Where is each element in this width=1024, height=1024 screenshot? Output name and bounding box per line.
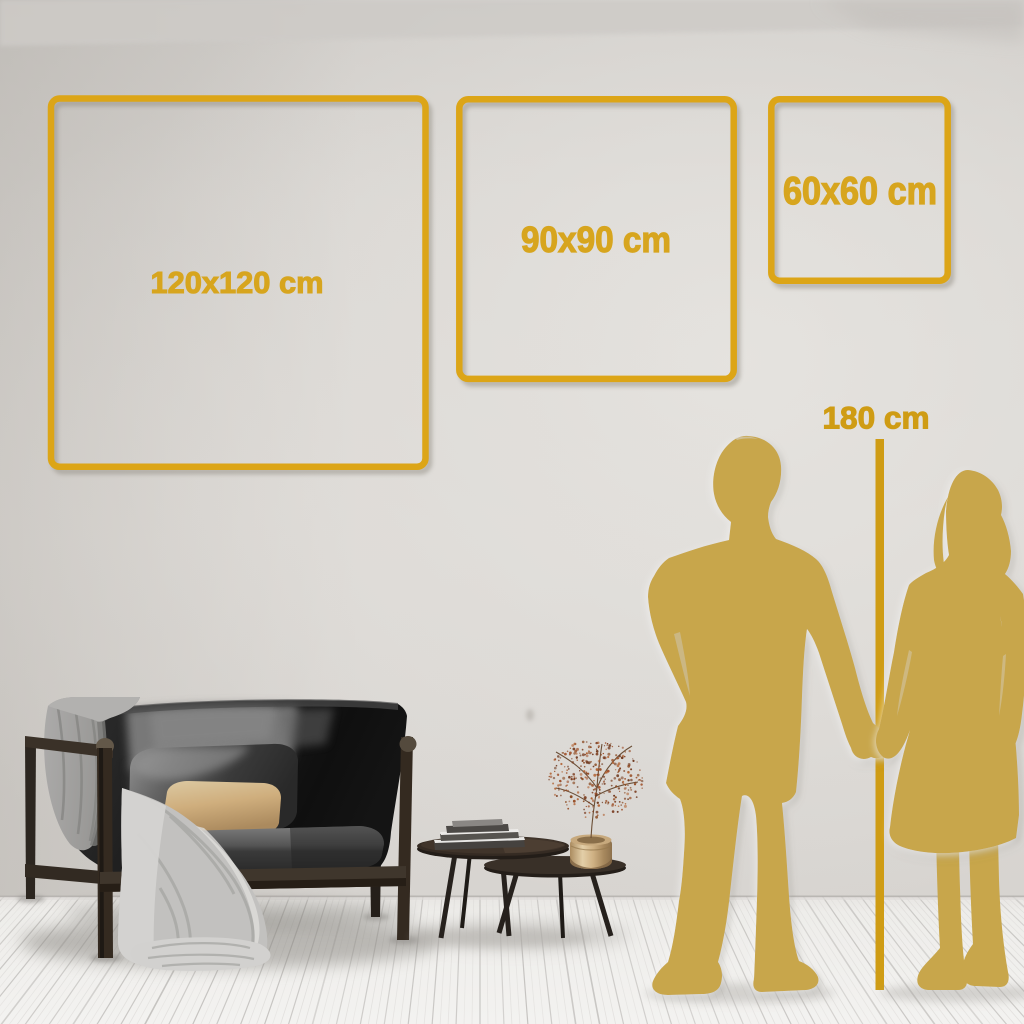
svg-text:120x120 cm: 120x120 cm [151,265,324,300]
svg-text:90x90 cm: 90x90 cm [521,219,671,260]
svg-text:180 cm: 180 cm [823,400,930,436]
svg-text:60x60 cm: 60x60 cm [783,170,937,213]
